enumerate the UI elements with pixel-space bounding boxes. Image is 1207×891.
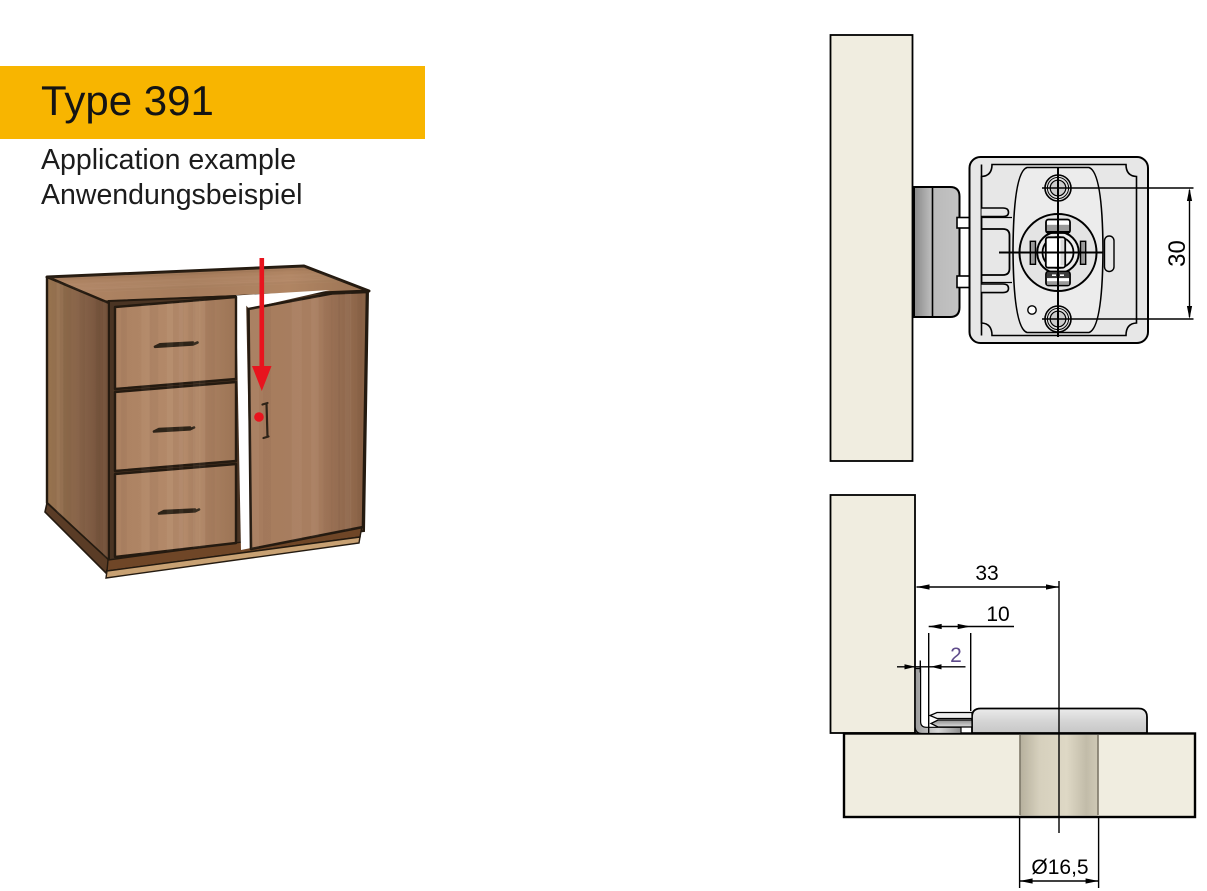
svg-text:30: 30 [1164,240,1191,267]
svg-text:2: 2 [950,644,962,667]
svg-text:33: 33 [975,562,998,585]
svg-text:10: 10 [986,603,1009,626]
svg-text:Ø16,5: Ø16,5 [1031,856,1088,879]
